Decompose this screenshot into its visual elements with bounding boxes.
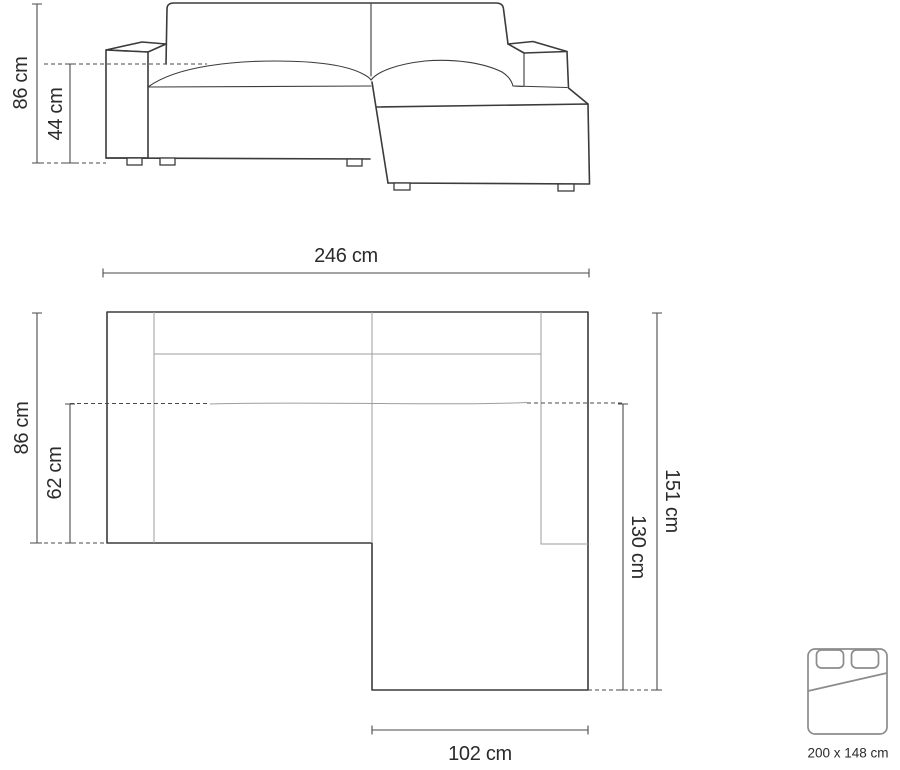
right-armrest-outer-edge (567, 52, 588, 105)
bed-top-view-icon: 200 x 148 cm (807, 649, 888, 761)
sleeping-area-size-label: 200 x 148 cm (807, 746, 888, 761)
plan-seat-depth-label: 62 cm (44, 447, 66, 500)
sofa-foot (160, 158, 175, 165)
right-armrest-top (508, 42, 567, 54)
chaise-foot (394, 183, 410, 190)
dimension-line (32, 313, 42, 543)
dimension-line (65, 404, 75, 543)
dimension-front-seat-height: 44 cm (45, 64, 75, 163)
chaise-box (377, 104, 590, 184)
plan-width-label: 246 cm (314, 245, 378, 267)
plan-depth-label: 86 cm (11, 402, 33, 455)
diagram-canvas: 86 cm 44 cm 246 cm (0, 0, 900, 770)
dimension-front-height: 86 cm (10, 4, 42, 163)
dimension-line (652, 313, 662, 690)
chaise-left-edge (372, 82, 388, 183)
right-armrest-bottom-edge (513, 86, 567, 88)
seat-bottom-edge (106, 158, 370, 159)
dimension-plan-width: 246 cm (103, 245, 589, 278)
dimension-plan-chaise-width: 102 cm (372, 726, 588, 766)
plan-outline (107, 312, 588, 690)
plan-total-length-label: 151 cm (661, 469, 683, 533)
sofa-foot (347, 159, 362, 166)
left-armrest-front (106, 50, 148, 158)
sofa-backrest (166, 3, 508, 64)
plan-chaise-width-label: 102 cm (448, 743, 512, 765)
dimension-plan-depth: 86 cm (11, 313, 42, 543)
dimension-line (103, 269, 589, 278)
dimension-plan-chaise-length: 130 cm (618, 404, 649, 690)
chaise-foot (558, 184, 574, 191)
sofa-dimension-diagram: 86 cm 44 cm 246 cm (0, 0, 900, 770)
dimension-line (32, 4, 42, 163)
plan-chaise-length-label: 130 cm (627, 515, 649, 579)
dimension-line (372, 726, 588, 735)
dimension-plan-total-length: 151 cm (652, 313, 683, 690)
bed-pillow-left (817, 650, 844, 668)
top-view-drawing (107, 312, 588, 690)
dimension-line (618, 404, 628, 690)
bed-pillow-right (852, 650, 879, 668)
front-seat-height-label: 44 cm (45, 88, 67, 141)
dimension-plan-seat-depth: 62 cm (44, 404, 75, 543)
left-seat-cushion (148, 61, 371, 87)
front-view-drawing (106, 3, 590, 191)
chaise-seat-cushion (371, 60, 523, 86)
front-height-label: 86 cm (10, 57, 32, 110)
seat-front-top-edge (148, 86, 371, 87)
sofa-foot (127, 158, 142, 165)
